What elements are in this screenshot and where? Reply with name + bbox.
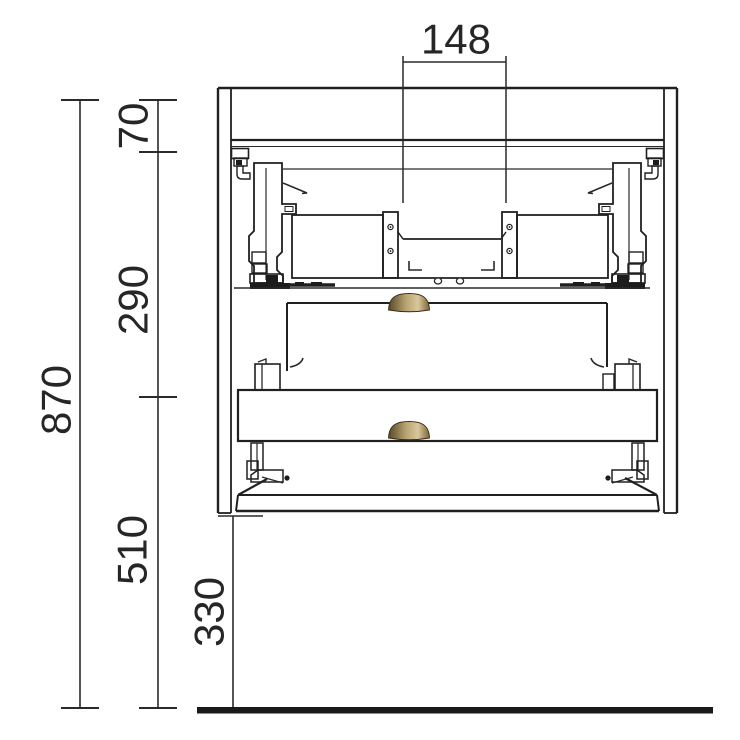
dimension-330: 330	[186, 516, 263, 708]
lower-drawer-front	[238, 390, 657, 441]
dim-label-330: 330	[186, 577, 233, 647]
vanity-section-drawing: 148 870 70 290 510 330	[0, 0, 740, 740]
cabinet-bottom-panel	[236, 478, 659, 511]
technical-drawing-canvas: 148 870 70 290 510 330	[0, 0, 740, 740]
bracket-step-right	[603, 374, 614, 390]
upper-cup-handle-icon	[389, 294, 430, 312]
siphon-recess	[398, 232, 506, 270]
lower-slide-hardware-right	[605, 443, 648, 483]
dimension-148: 148	[403, 16, 506, 203]
dim-label-290: 290	[110, 265, 157, 335]
lower-cup-handle-icon	[389, 422, 430, 440]
dimension-870: 870	[33, 100, 99, 708]
dimension-chain-70-290-510: 70 290 510	[109, 100, 177, 708]
dim-label-870: 870	[33, 365, 80, 435]
dim-label-148: 148	[421, 16, 491, 63]
upper-drawer-box	[234, 212, 650, 288]
lower-slide-hardware-left	[247, 443, 290, 483]
dim-label-510: 510	[109, 515, 156, 585]
dim-label-70: 70	[110, 103, 157, 150]
upper-drawer-front	[287, 303, 607, 371]
floor-line	[197, 707, 713, 714]
lower-drawer-back-bracket-right	[615, 359, 640, 390]
lower-drawer-back-bracket-left	[255, 359, 280, 390]
cabinet-carcass	[218, 88, 677, 513]
